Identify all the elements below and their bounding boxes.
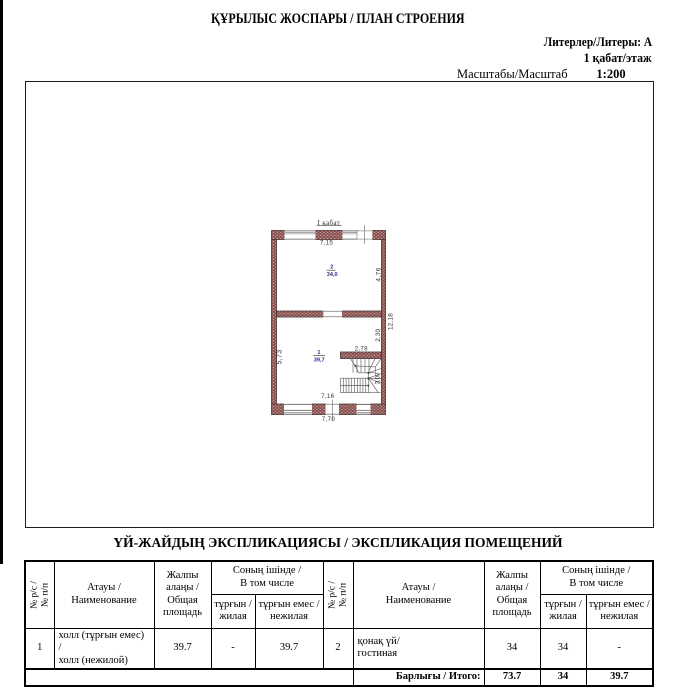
svg-text:2,78: 2,78 <box>355 345 369 352</box>
svg-text:4,76: 4,76 <box>375 267 382 281</box>
svg-text:5,73: 5,73 <box>276 350 283 365</box>
svg-text:34,0: 34,0 <box>327 272 338 278</box>
svg-text:2: 2 <box>330 265 333 271</box>
svg-text:7,16: 7,16 <box>321 393 335 400</box>
svg-text:12,18: 12,18 <box>388 313 395 330</box>
svg-text:39,7: 39,7 <box>314 358 325 364</box>
svg-text:2,30: 2,30 <box>375 329 382 342</box>
svg-text:7,70: 7,70 <box>322 416 336 423</box>
svg-text:3,00: 3,00 <box>375 372 381 384</box>
svg-text:7,15: 7,15 <box>320 240 334 247</box>
